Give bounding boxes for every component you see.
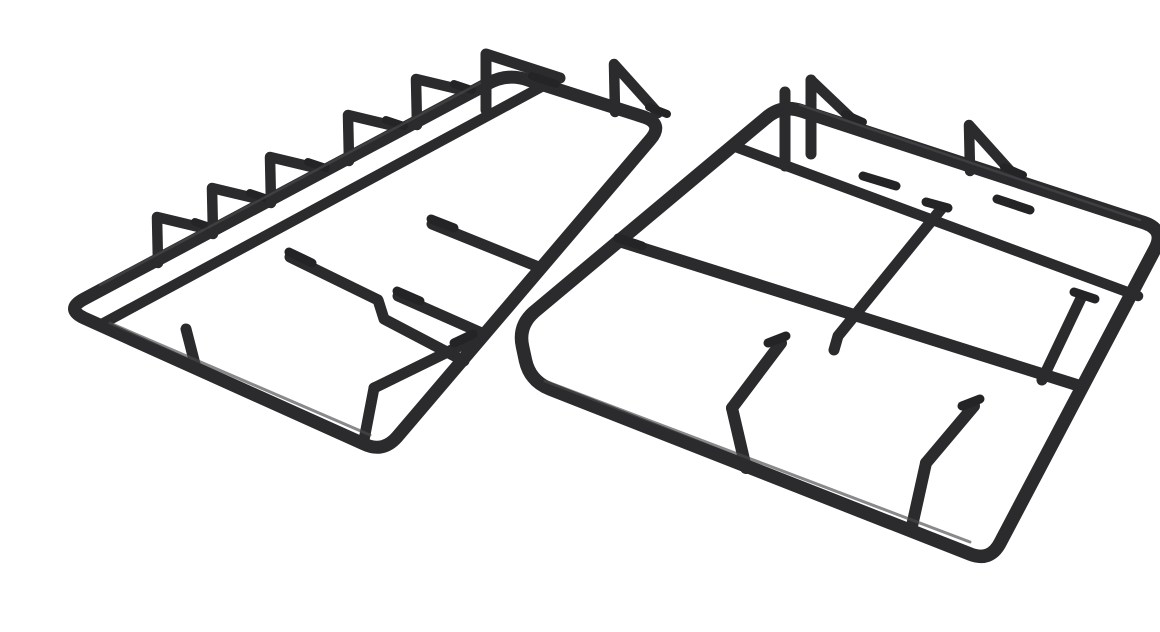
left-pan-support: [75, 54, 668, 447]
right-back-finger-tip-1: [863, 176, 896, 186]
left-rail: [100, 86, 543, 325]
right-side-finger: [1042, 296, 1082, 380]
pan-support-grids-illustration: [40, 16, 1160, 616]
right-pan-support: [522, 80, 1159, 556]
right-staple-bar-2: [926, 406, 974, 463]
right-back-finger-tip-2: [997, 199, 1030, 210]
right-front-rim-highlight: [545, 381, 970, 542]
left-front-rim-highlight: [110, 323, 370, 435]
right-cross-finger-tip: [926, 202, 948, 208]
right-staple-bar-1: [732, 343, 781, 408]
right-staple-riser-2: [912, 463, 926, 526]
product-photo: Two matte black cast-iron pan support gr…: [40, 16, 1160, 616]
